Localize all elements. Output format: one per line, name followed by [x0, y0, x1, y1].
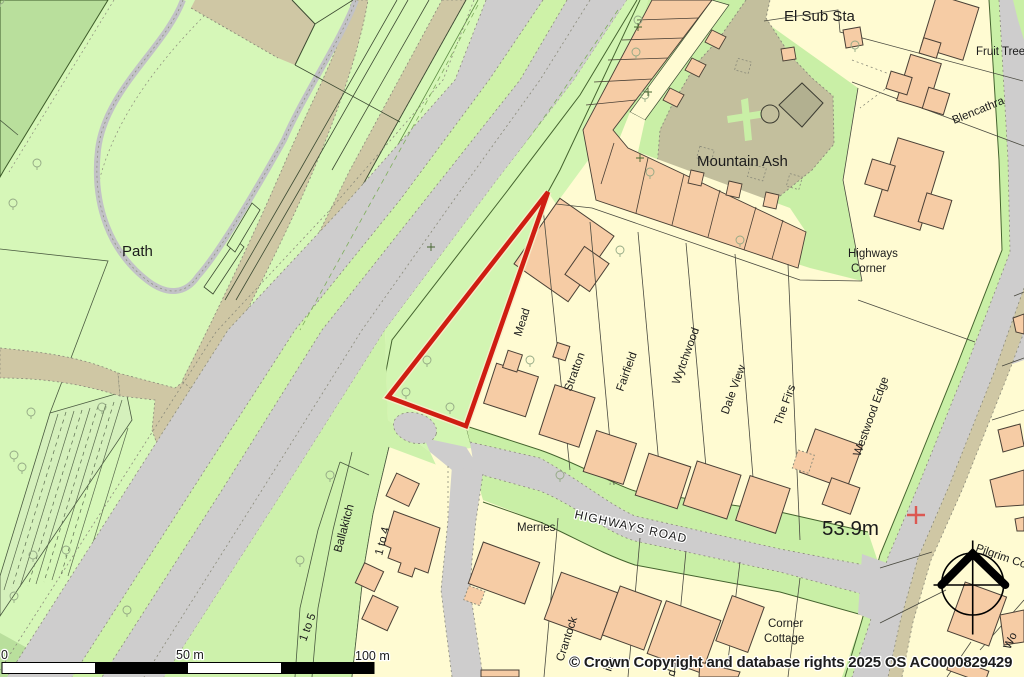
svg-text:Corner: Corner	[768, 618, 803, 630]
svg-text:Corner: Corner	[851, 263, 886, 275]
svg-text:Cottage: Cottage	[764, 633, 804, 645]
svg-text:0: 0	[1, 648, 8, 662]
svg-text:El Sub Sta: El Sub Sta	[784, 8, 856, 25]
svg-text:Merries: Merries	[517, 522, 556, 534]
svg-text:100 m: 100 m	[355, 649, 390, 663]
svg-text:© Crown Copyright and database: © Crown Copyright and database rights 20…	[569, 654, 1012, 671]
svg-text:53.9m: 53.9m	[822, 517, 879, 540]
svg-text:Fruit Tree: Fruit Tree	[976, 46, 1024, 58]
svg-text:Mountain Ash: Mountain Ash	[697, 153, 788, 170]
svg-text:50 m: 50 m	[176, 648, 204, 662]
svg-text:Highways: Highways	[848, 248, 898, 260]
svg-text:Path: Path	[122, 243, 153, 260]
